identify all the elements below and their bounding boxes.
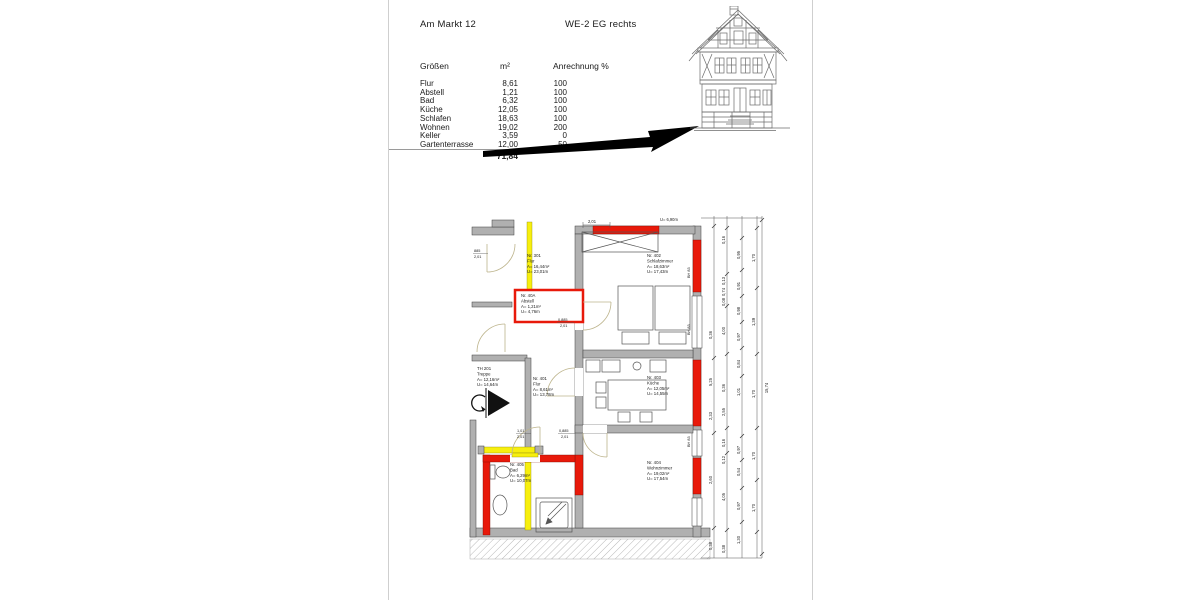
svg-text:Nr. 403: Nr. 403 [647,375,661,380]
svg-text:A= 16,44m²: A= 16,44m² [527,264,550,269]
page-border-left [388,0,389,600]
svg-text:A= 6,29m²: A= 6,29m² [510,473,531,478]
svg-text:0,95: 0,95 [736,250,741,259]
top-perimeter-label: U= 6,90m [660,217,678,222]
svg-text:885: 885 [474,249,480,253]
svg-text:2,01: 2,01 [517,435,524,439]
svg-text:0,08: 0,08 [721,297,726,306]
room-label-301: Nr. 301Flur A= 16,44m²U= 23,01m [527,253,550,274]
room-label-402: Nr. 402Schlafzimmer A= 18,63m²U= 17,43m [647,253,674,274]
pointer-arrow [460,115,710,170]
svg-text:Flur: Flur [533,381,541,386]
svg-text:1,30: 1,30 [736,535,741,544]
shower [536,498,572,532]
svg-text:Schlafzimmer: Schlafzimmer [647,258,674,263]
svg-text:1,01: 1,01 [736,387,741,396]
table-header-anrechnung: Anrechnung % [553,61,609,71]
svg-text:0,97: 0,97 [736,445,741,454]
svg-text:0,13: 0,13 [721,276,726,285]
door-dim-1: 8852,01 [473,249,488,259]
room-label-401: Nr. 401Flur A= 8,61m²U= 13,78m [533,376,555,397]
room-label-th201: TH 201Treppe A= 12,16m²U= 14,64m [477,366,500,387]
svg-text:2,01: 2,01 [560,324,567,328]
svg-text:0,36: 0,36 [721,383,726,392]
svg-text:1,70: 1,70 [751,503,756,512]
window-mark: BH 83 [687,267,691,278]
svg-text:0,16: 0,16 [721,438,726,447]
svg-text:15,74: 15,74 [764,382,769,393]
svg-text:2,01: 2,01 [474,255,481,259]
svg-text:U= 4,76m: U= 4,76m [521,309,540,314]
svg-text:A= 12,05m²: A= 12,05m² [647,386,670,391]
svg-text:Nr. 40A: Nr. 40A [521,293,535,298]
window-mark: BH 83 [687,324,691,335]
svg-text:1,01: 1,01 [517,429,524,433]
svg-text:0,885: 0,885 [559,429,569,433]
toilet [490,465,510,479]
svg-text:0,38: 0,38 [721,544,726,553]
document-page: { "header": { "address": "Am Markt 12", … [0,0,1200,600]
table-header-sizes: Größen [420,61,449,71]
svg-text:0,97: 0,97 [736,332,741,341]
svg-text:0,36: 0,36 [708,330,713,339]
floor-plan: Nr. 301Flur A= 16,44m²U= 23,01m Nr. 40AA… [468,208,778,568]
svg-text:A= 18,63m²: A= 18,63m² [647,264,670,269]
svg-text:U= 14,55m: U= 14,55m [647,391,669,396]
svg-text:2,55: 2,55 [721,407,726,416]
svg-text:Nr. 401: Nr. 401 [533,376,547,381]
svg-text:0,885: 0,885 [558,318,568,322]
svg-text:Abstell: Abstell [521,298,534,303]
svg-text:0,12: 0,12 [721,455,726,464]
svg-text:2,01: 2,01 [561,435,568,439]
svg-text:5,25: 5,25 [708,377,713,386]
building-elevation [688,6,792,136]
svg-text:A= 8,61m²: A= 8,61m² [533,387,554,392]
wardrobe [582,232,658,252]
svg-text:U= 23,01m: U= 23,01m [527,269,549,274]
svg-text:Flur: Flur [527,258,535,263]
svg-text:0,91: 0,91 [736,281,741,290]
svg-text:1,39: 1,39 [751,317,756,326]
address-title: Am Markt 12 [420,19,476,30]
svg-text:Treppe: Treppe [477,371,491,376]
table-header-m2: m² [500,61,510,71]
room-label-404: Nr. 404Wohnzimmer A= 19,02m²U= 17,54m [647,460,673,481]
svg-text:0,98: 0,98 [736,306,741,315]
svg-text:2,33: 2,33 [708,411,713,420]
room-label-403: Nr. 403Küche A= 12,05m²U= 14,55m [647,375,670,396]
svg-text:0,54: 0,54 [736,467,741,476]
svg-text:U= 17,54m: U= 17,54m [647,476,669,481]
svg-text:Küche: Küche [647,380,660,385]
sink [493,495,507,515]
unit-title: WE-2 EG rechts [565,19,636,30]
svg-text:2,60: 2,60 [708,475,713,484]
svg-text:0,84: 0,84 [736,359,741,368]
svg-text:0,74: 0,74 [721,287,726,296]
table-row: Abstell1,21100 [420,89,567,98]
svg-text:U= 17,43m: U= 17,43m [647,269,669,274]
svg-text:0,97: 0,97 [736,501,741,510]
svg-text:Bad: Bad [510,467,518,472]
svg-text:Nr. 402: Nr. 402 [647,253,661,258]
bed [618,286,690,344]
svg-text:4,05: 4,05 [721,492,726,501]
door-dim-4: 0,8852,01 [558,429,575,439]
window-mark: BH 83 [687,436,691,447]
svg-text:TH 201: TH 201 [477,366,492,371]
page-border-right [812,0,813,600]
svg-text:U= 10,07m: U= 10,07m [510,478,532,483]
svg-text:0,38: 0,38 [708,541,713,550]
svg-text:A= 1,21m²: A= 1,21m² [521,304,542,309]
svg-text:A= 19,02m²: A= 19,02m² [647,471,670,476]
svg-text:A= 12,16m²: A= 12,16m² [477,377,500,382]
terrace-hatch [470,539,710,559]
svg-text:2,01: 2,01 [588,219,597,224]
svg-text:1,70: 1,70 [751,389,756,398]
svg-text:Nr. 404: Nr. 404 [647,460,661,465]
svg-text:0,16: 0,16 [721,235,726,244]
svg-text:Nr. 405: Nr. 405 [510,462,524,467]
svg-text:U= 13,78m: U= 13,78m [533,392,555,397]
svg-text:1,70: 1,70 [751,253,756,262]
dimension-chain: 0,36 5,25 2,33 2,60 0,38 0,16 0,13 0,74 … [701,216,769,558]
svg-text:1,70: 1,70 [751,451,756,460]
stair-direction-arrow [472,388,510,418]
svg-text:Wohnzimmer: Wohnzimmer [647,465,673,470]
svg-text:Nr. 301: Nr. 301 [527,253,541,258]
svg-text:4,00: 4,00 [721,326,726,335]
svg-text:U= 14,64m: U= 14,64m [477,382,499,387]
